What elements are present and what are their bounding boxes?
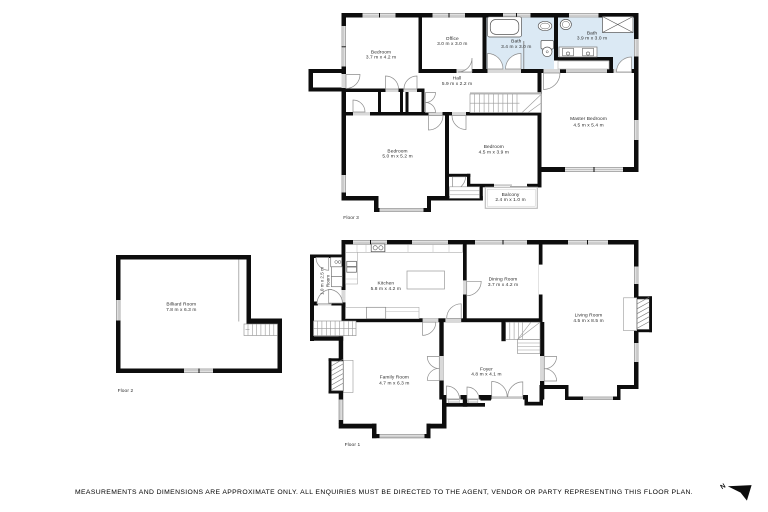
svg-text:5.0 m x 5.2 m: 5.0 m x 5.2 m (382, 154, 412, 160)
svg-text:4.5 m x 3.9 m: 4.5 m x 3.9 m (479, 150, 509, 156)
svg-text:Room: Room (326, 275, 331, 287)
svg-text:1.0 m x 2.5 m: 1.0 m x 2.5 m (320, 267, 325, 295)
svg-text:Living Room: Living Room (575, 313, 603, 319)
svg-text:3.7 m x 4.2 m: 3.7 m x 4.2 m (488, 282, 518, 288)
svg-text:3.4 m x 3.0 m: 3.4 m x 3.0 m (501, 44, 531, 50)
svg-text:4.5 m x 5.4 m: 4.5 m x 5.4 m (573, 122, 603, 128)
svg-text:Kitchen: Kitchen (377, 280, 394, 286)
svg-text:5.8 m x 4.2 m: 5.8 m x 4.2 m (371, 286, 401, 292)
svg-text:3.9 m x 3.0 m: 3.9 m x 3.0 m (577, 36, 607, 42)
svg-text:4.8 m x 4.1 m: 4.8 m x 4.1 m (471, 372, 501, 378)
svg-text:Billiard Room: Billiard Room (166, 301, 196, 307)
svg-text:Bedroom: Bedroom (484, 144, 504, 150)
svg-text:Bedroom: Bedroom (387, 148, 407, 154)
svg-text:Bath: Bath (511, 38, 522, 44)
svg-text:5.9 m x 2.2 m: 5.9 m x 2.2 m (442, 81, 472, 87)
svg-text:Floor 3: Floor 3 (343, 215, 359, 221)
svg-text:4.7 m x 6.3 m: 4.7 m x 6.3 m (379, 381, 409, 387)
svg-text:Master Bedroom: Master Bedroom (570, 116, 607, 122)
svg-text:3.0 m x 3.0 m: 3.0 m x 3.0 m (437, 41, 467, 47)
svg-text:Dining Room: Dining Room (489, 277, 518, 283)
svg-text:2.4 m x 1.0 m: 2.4 m x 1.0 m (495, 197, 525, 203)
svg-text:MEASUREMENTS AND DIMENSIONS AR: MEASUREMENTS AND DIMENSIONS ARE APPROXIM… (75, 489, 693, 496)
svg-text:Hall: Hall (453, 76, 462, 82)
svg-text:7.8 m x 6.3 m: 7.8 m x 6.3 m (166, 307, 196, 313)
svg-text:Foyer: Foyer (480, 366, 493, 372)
svg-text:3.7 m x 4.2 m: 3.7 m x 4.2 m (366, 54, 396, 60)
svg-text:Floor 1: Floor 1 (345, 442, 361, 448)
svg-text:Floor 2: Floor 2 (118, 388, 134, 394)
svg-text:4.5 m x 8.5 m: 4.5 m x 8.5 m (573, 318, 603, 324)
svg-text:Family Room: Family Room (380, 375, 409, 381)
svg-text:Bath: Bath (587, 30, 598, 36)
